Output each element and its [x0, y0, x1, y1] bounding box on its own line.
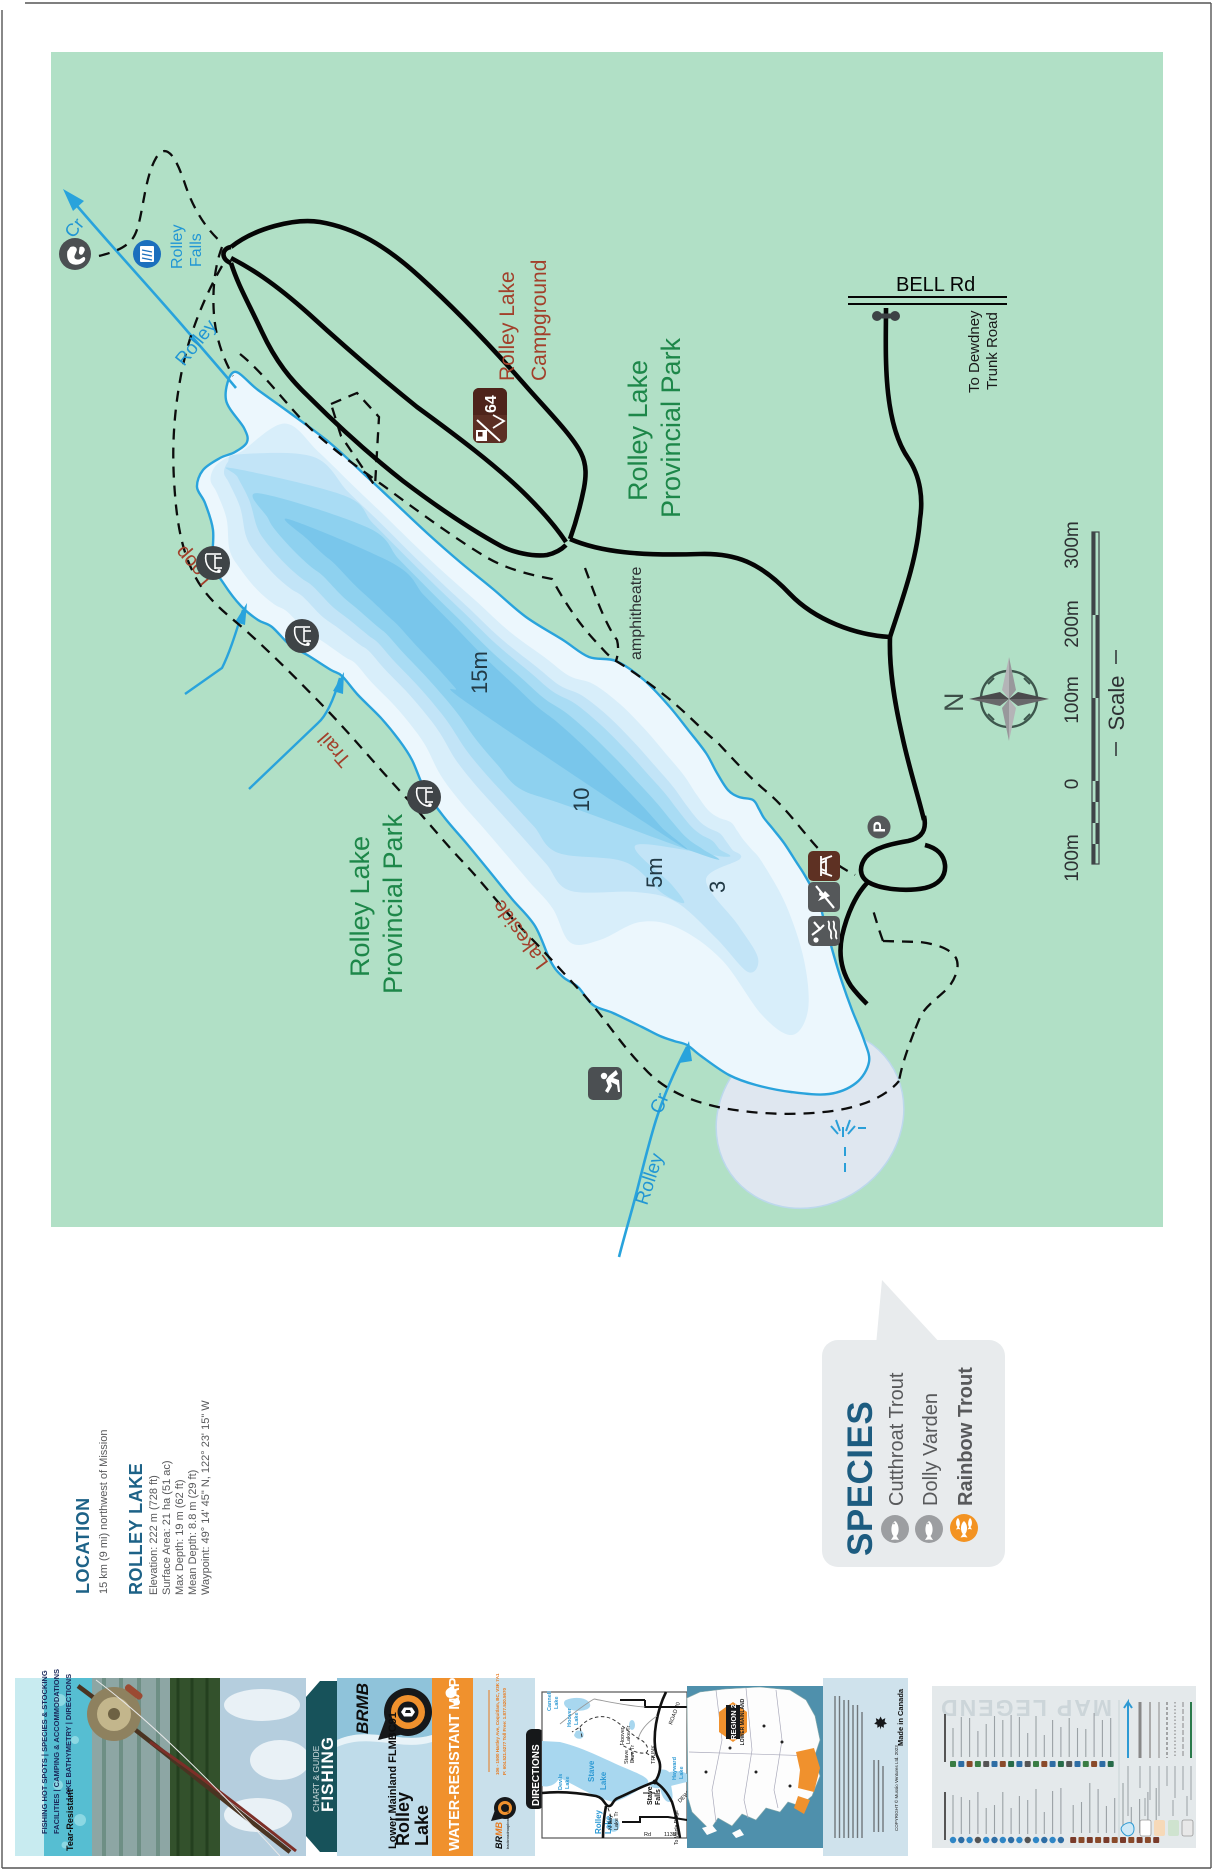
svg-text:Provincial Park: Provincial Park [656, 337, 686, 518]
svg-text:P: 604.521.6277 Toll Free: 1: P: 604.521.6277 Toll Free: 1.877.520.567… [502, 1688, 507, 1775]
svg-text:COPYRIGHT © Mussio Ventures Lt: COPYRIGHT © Mussio Ventures Ltd. 2023 [893, 1745, 899, 1831]
svg-text:MAP LEGEND: MAP LEGEND [939, 1695, 1112, 1721]
svg-text:LOCATION: LOCATION [73, 1497, 93, 1594]
svg-text:FACILITIES | CAMPING & ACCOMMO: FACILITIES | CAMPING & ACCOMMODATIONS [52, 1669, 61, 1834]
svg-text:Lake Tr: Lake Tr [614, 1811, 620, 1830]
svg-text:To Maple Ridge: To Maple Ridge [674, 1810, 680, 1845]
svg-text:Campground: Campground [528, 260, 551, 381]
svg-text:BRMB: BRMB [494, 1822, 504, 1849]
svg-text:REGION 2: REGION 2 [729, 1704, 738, 1740]
svg-text:backroadmapbooks.com: backroadmapbooks.com [505, 1805, 510, 1849]
svg-text:Stave: Stave [647, 1786, 654, 1805]
svg-text:Lake: Lake [554, 1696, 560, 1709]
svg-text:Made in Canada: Made in Canada [896, 1688, 905, 1746]
svg-text:Falls: Falls [188, 233, 205, 267]
svg-text:Rolley: Rolley [594, 1809, 603, 1834]
svg-text:Dolly Varden: Dolly Varden [920, 1393, 942, 1506]
svg-text:Dam Tr: Dam Tr [630, 1745, 636, 1763]
svg-text:Max Depth: 19 m (62 ft): Max Depth: 19 m (62 ft) [174, 1479, 186, 1595]
svg-text:Devils: Devils [558, 1774, 564, 1790]
svg-text:Rolley: Rolley [393, 1792, 413, 1846]
svg-text:To Dewdney: To Dewdney [966, 310, 983, 393]
svg-text:N: N [939, 693, 969, 713]
svg-text:Scale: Scale [1104, 675, 1129, 730]
svg-text:ROLLEY LAKE: ROLLEY LAKE [126, 1463, 146, 1595]
svg-text:106 - 1500 Hartley Ave, Coquit: 106 - 1500 Hartley Ave, Coquitlam, BC, V… [495, 1673, 500, 1775]
svg-text:15 km (9 mi) northwest of Miss: 15 km (9 mi) northwest of Mission [98, 1430, 110, 1594]
svg-text:Rolley Lake: Rolley Lake [623, 360, 653, 501]
svg-text:300m: 300m [1062, 521, 1083, 569]
svg-text:amphitheatre: amphitheatre [628, 567, 645, 660]
svg-text:LAKE BATHYMETRY | DIRECTIONS: LAKE BATHYMETRY | DIRECTIONS [64, 1674, 73, 1800]
svg-text:WATER-RESISTANT MAP: WATER-RESISTANT MAP [447, 1677, 463, 1851]
svg-text:CHART & GUIDE: CHART & GUIDE [311, 1745, 321, 1812]
svg-text:Lake: Lake [599, 1771, 608, 1790]
svg-text:Rd: Rd [644, 1832, 651, 1838]
svg-text:Lake Tr: Lake Tr [626, 1725, 632, 1744]
svg-text:Surface Area: 21 ha (51 ac): Surface Area: 21 ha (51 ac) [161, 1460, 173, 1595]
svg-text:BRMB: BRMB [353, 1683, 372, 1734]
svg-text:Lake: Lake [412, 1805, 432, 1846]
svg-text:100m: 100m [1062, 676, 1083, 724]
svg-text:5m: 5m [642, 857, 667, 888]
svg-text:LOWER MAINLAND: LOWER MAINLAND [740, 1698, 746, 1745]
svg-text:Lake: Lake [574, 1712, 580, 1725]
svg-text:Falls: Falls [655, 1789, 662, 1805]
svg-text:Mean Depth: 8.8 m (29 ft): Mean Depth: 8.8 m (29 ft) [187, 1470, 199, 1595]
svg-text:Trunk Road: Trunk Road [984, 312, 1001, 390]
svg-text:Stave: Stave [587, 1760, 596, 1782]
svg-text:Cannell: Cannell [547, 1691, 553, 1711]
svg-text:Waypoint: 49° 14' 45" N, 122°: Waypoint: 49° 14' 45" N, 122° 23' 15" W [200, 1400, 212, 1595]
svg-text:TRUNK: TRUNK [651, 1745, 657, 1764]
svg-text:Rolley: Rolley [169, 225, 186, 269]
svg-text:Provincial Park: Provincial Park [378, 813, 408, 994]
svg-text:FISHING HOT SPOTS | SPECIES &: FISHING HOT SPOTS | SPECIES & STOCKING [40, 1670, 49, 1834]
svg-text:15m: 15m [467, 651, 492, 694]
svg-text:P: P [870, 821, 889, 832]
svg-text:200m: 200m [1062, 600, 1083, 648]
svg-text:0: 0 [1062, 779, 1083, 790]
svg-text:3: 3 [705, 881, 730, 893]
svg-text:SPECIES: SPECIES [841, 1401, 880, 1556]
svg-text:Lake: Lake [565, 1776, 571, 1789]
svg-text:100m: 100m [1062, 834, 1083, 882]
svg-text:Rolley Lake: Rolley Lake [345, 836, 375, 977]
svg-text:Elevation: 222 m (728 ft): Elevation: 222 m (728 ft) [148, 1475, 160, 1595]
svg-text:Hayward: Hayward [672, 1757, 678, 1780]
svg-text:Cutthroat Trout: Cutthroat Trout [886, 1372, 908, 1506]
svg-text:Hoover: Hoover [567, 1707, 573, 1727]
svg-text:BELL Rd: BELL Rd [896, 274, 975, 296]
svg-text:Lake: Lake [679, 1766, 685, 1779]
svg-text:Rolley Lake: Rolley Lake [496, 271, 519, 381]
svg-text:Tear-Resistant: Tear-Resistant [65, 1789, 75, 1851]
svg-text:DIRECTIONS: DIRECTIONS [531, 1744, 542, 1806]
svg-text:10: 10 [569, 788, 594, 812]
svg-text:64: 64 [483, 395, 500, 413]
svg-text:Rainbow Trout: Rainbow Trout [955, 1367, 977, 1506]
